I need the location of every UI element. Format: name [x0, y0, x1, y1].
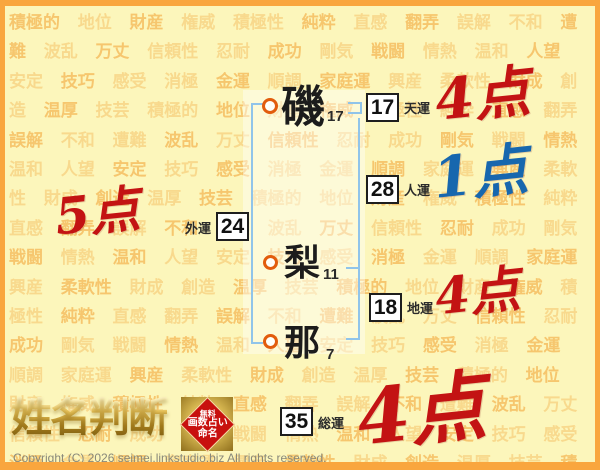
badge-line-kakusu: 画数占い	[187, 418, 227, 429]
gaiun-score: 5点	[53, 184, 143, 243]
chiun-value-box: 18	[369, 293, 402, 322]
chiun-score: 4点	[433, 264, 523, 323]
jinun-value-box: 28	[366, 175, 399, 204]
right-bracket-middle-tick	[346, 267, 359, 269]
right-bracket-line	[358, 118, 360, 340]
gaiun-label: 外運	[185, 222, 211, 235]
char-marker-circle	[263, 255, 278, 270]
tenun-value-box: 17	[366, 93, 399, 122]
char-marker-circle	[263, 334, 278, 349]
soun-value-box: 35	[280, 407, 313, 436]
stroke-count-1: 17	[327, 109, 344, 124]
naming-ad-badge[interactable]: 無料 画数占い 命名	[181, 397, 233, 451]
left-bracket-bottom-tick	[251, 342, 263, 344]
stroke-count-2: 11	[323, 267, 339, 282]
tenun-label: 天運	[404, 102, 430, 115]
badge-text: 無料 画数占い 命名	[187, 409, 227, 438]
chiun-label: 地運	[407, 302, 433, 315]
right-mini-bracket-top-tick	[348, 102, 361, 104]
badge-diamond-icon: 無料 画数占い 命名	[179, 396, 234, 451]
jinun-label: 人運	[404, 184, 430, 197]
gaiun-value-box: 24	[216, 212, 249, 241]
copyright-text: Copyright (C) 2026 seimei.linkstudio.biz…	[13, 451, 326, 465]
name-char-2: 梨	[284, 245, 320, 281]
name-char-1: 磯	[281, 86, 325, 130]
char-marker-circle	[262, 98, 278, 114]
seimei-result-page: 積極的 地位 財産 権威 積極性 純粋 直感 翻弄 誤解 不和 遭難 波乱 万丈…	[0, 0, 600, 470]
tenun-score: 4点	[432, 63, 532, 129]
soun-label: 総運	[318, 417, 344, 430]
soun-score: 4点	[353, 367, 489, 456]
site-logo[interactable]: 姓名判断	[11, 397, 167, 438]
name-char-3: 那	[284, 325, 320, 361]
right-bracket-bottom-tick	[346, 338, 359, 340]
badge-line-meimei: 命名	[187, 428, 227, 439]
stroke-count-3: 7	[326, 347, 334, 362]
diagram-layer: 磯 17 梨 11 那 7 17 天運 4点 28 人運 1点 外運 24 5点…	[5, 6, 595, 462]
right-mini-bracket-bottom-tick	[348, 112, 361, 114]
jinun-score: 1点	[430, 141, 530, 207]
left-bracket-line	[251, 104, 253, 344]
